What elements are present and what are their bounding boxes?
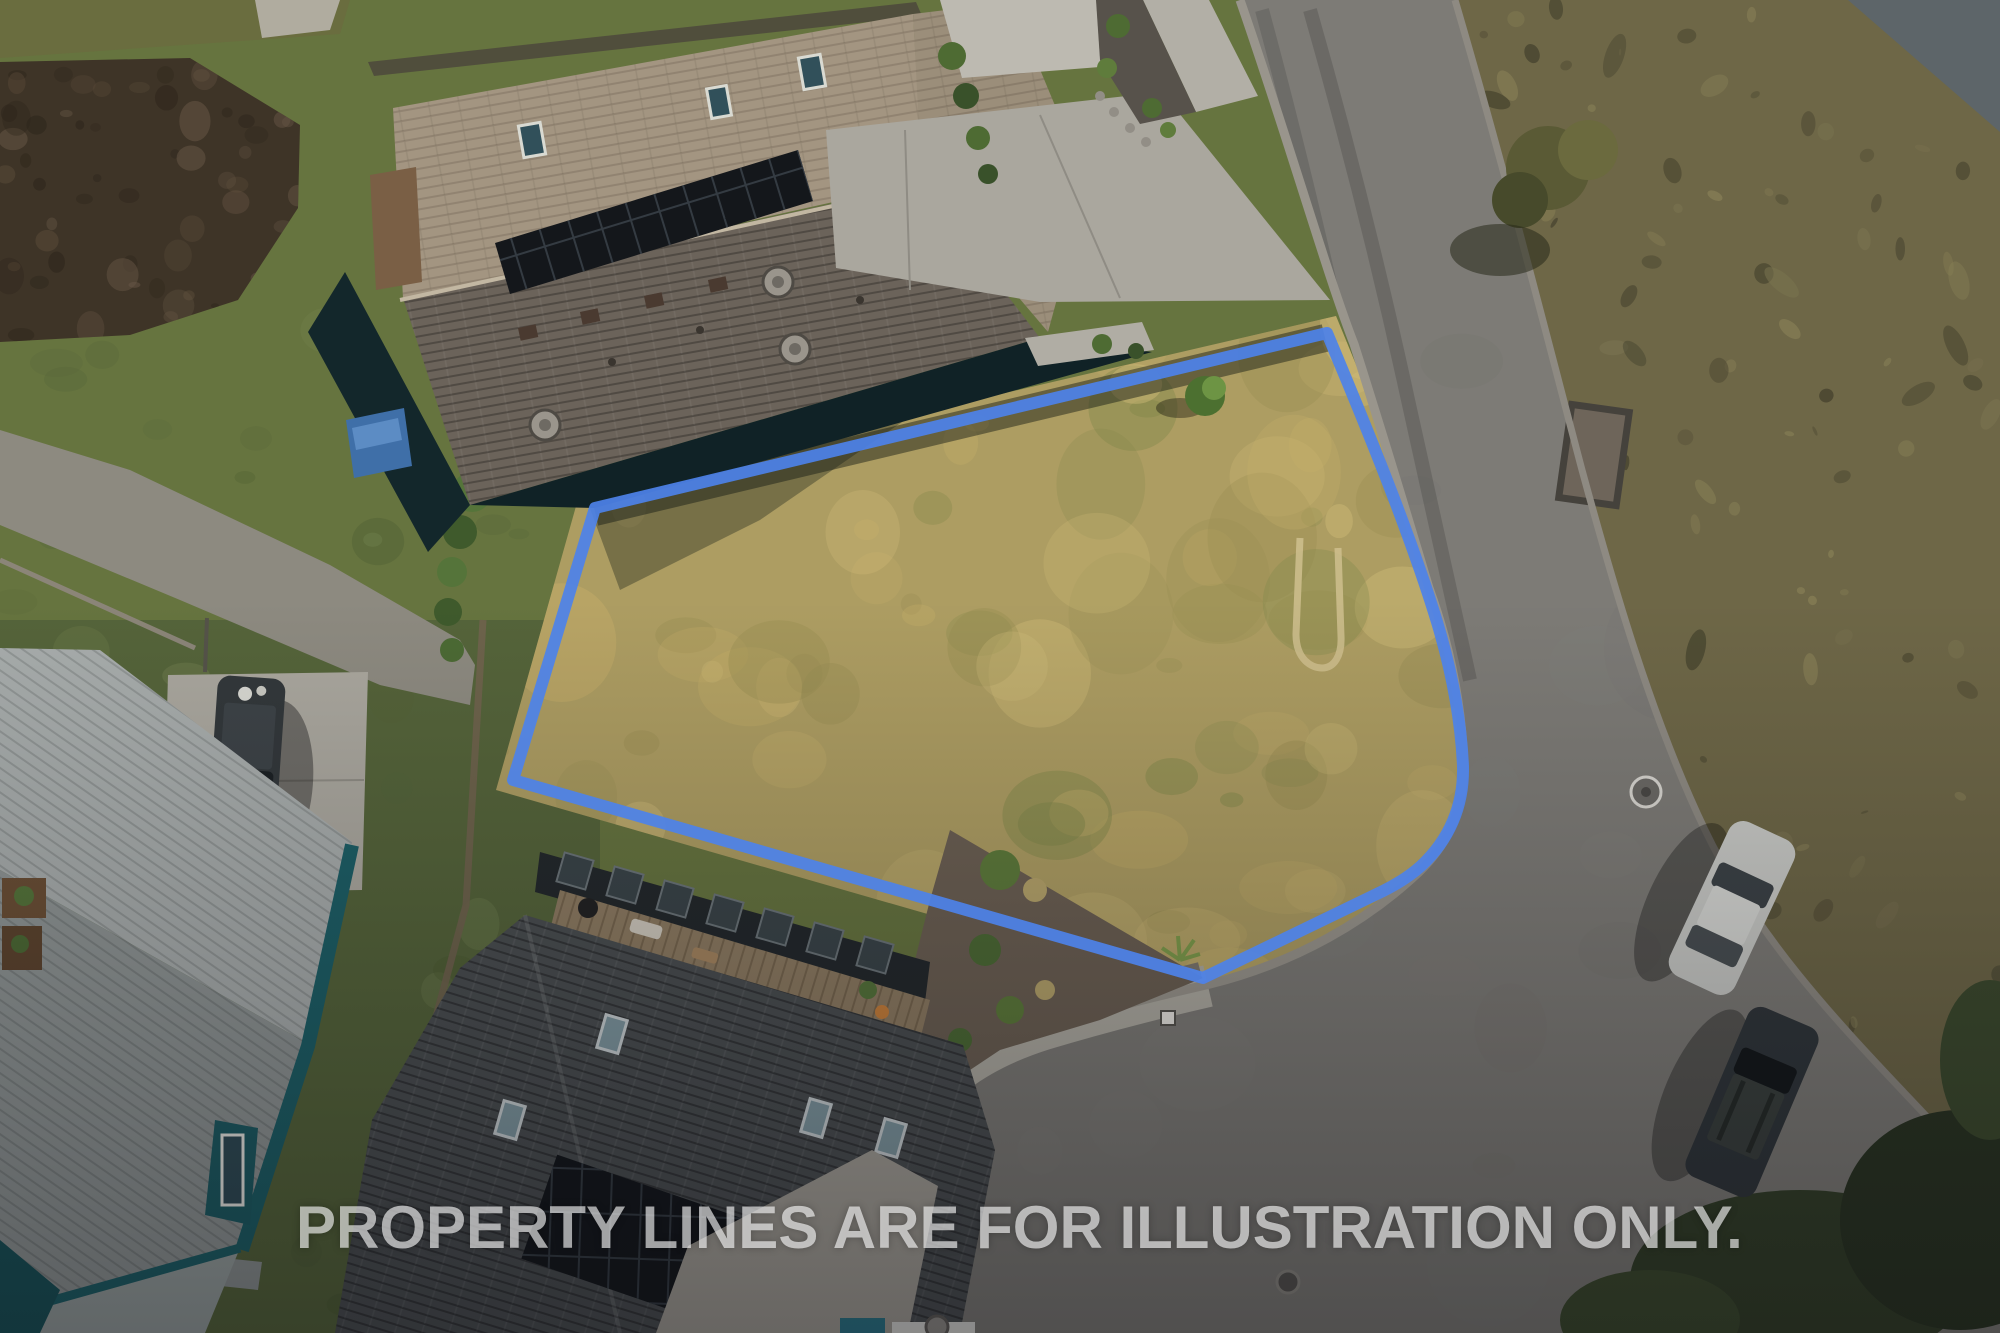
aerial-photo xyxy=(0,0,2000,1333)
aerial-photo-stage: PROPERTY LINES ARE FOR ILLUSTRATION ONLY… xyxy=(0,0,2000,1333)
bottom-gradient-overlay xyxy=(0,0,2000,1333)
watermark-text: PROPERTY LINES ARE FOR ILLUSTRATION ONLY… xyxy=(296,1198,1743,1258)
